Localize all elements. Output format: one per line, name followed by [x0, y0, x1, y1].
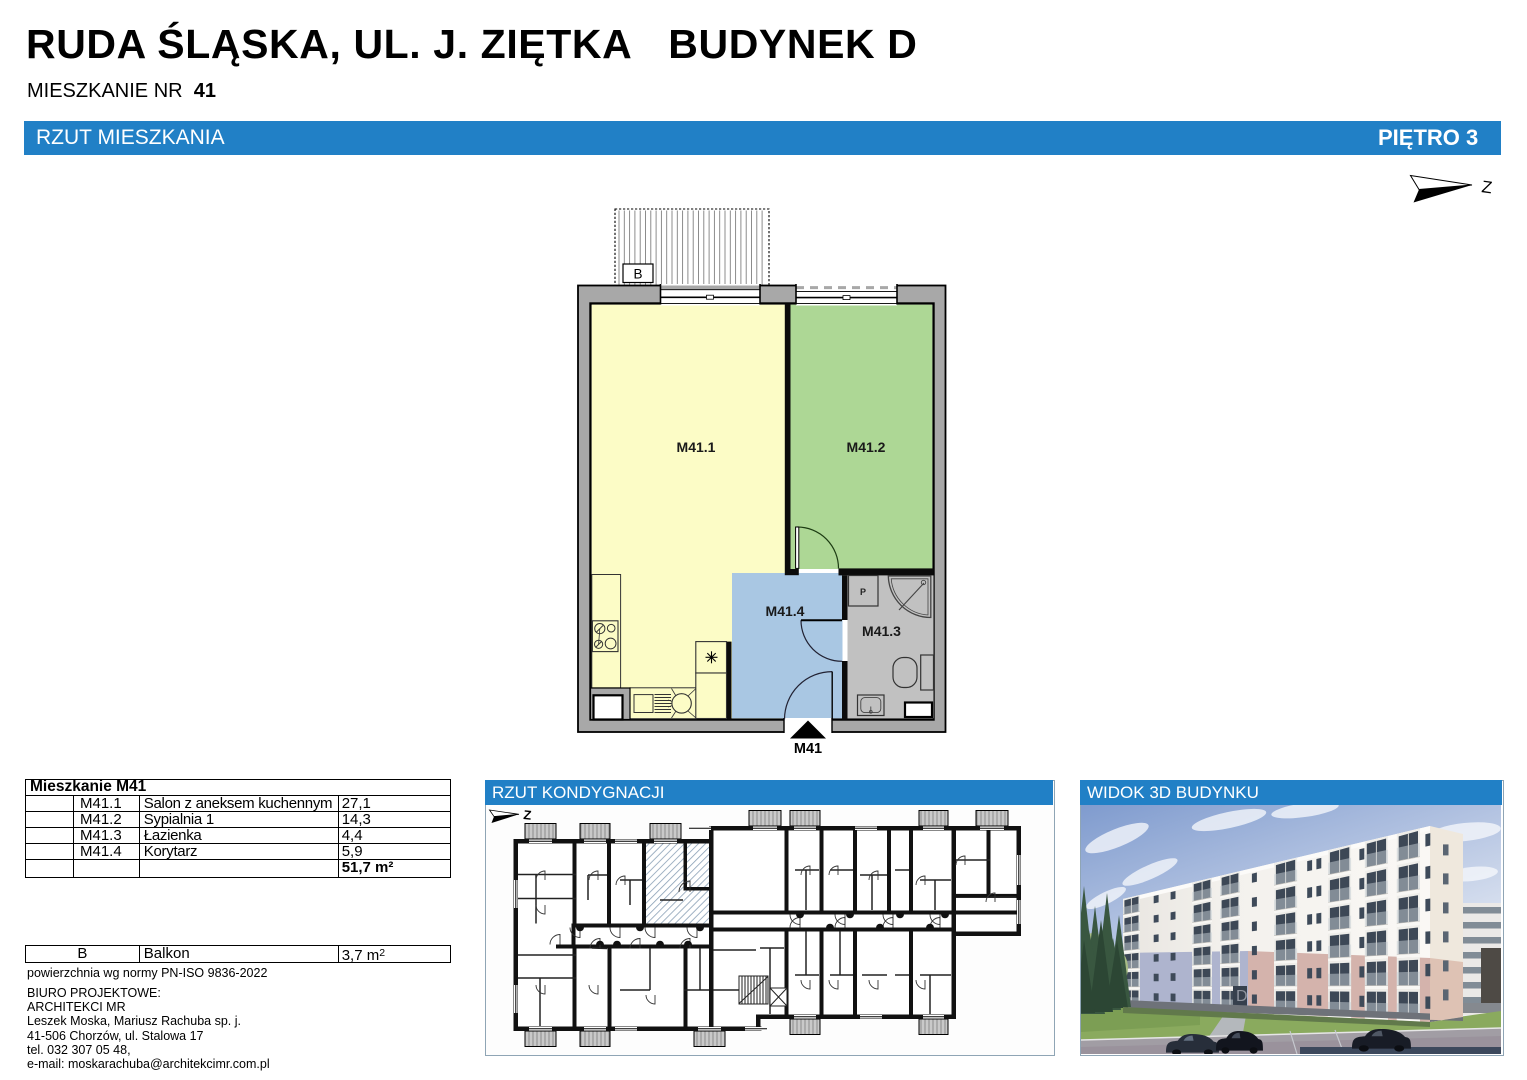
svg-text:M41: M41 [794, 741, 822, 757]
svg-text:D: D [1236, 988, 1248, 1005]
svg-text:M41.4: M41.4 [766, 603, 805, 619]
svg-text:Z: Z [1480, 177, 1493, 197]
svg-text:B: B [633, 267, 642, 282]
svg-text:M41.1: M41.1 [677, 439, 716, 455]
svg-text:Z: Z [523, 807, 533, 823]
svg-text:M41.3: M41.3 [862, 623, 901, 639]
svg-text:P: P [860, 587, 866, 597]
svg-text:M41.2: M41.2 [847, 439, 886, 455]
